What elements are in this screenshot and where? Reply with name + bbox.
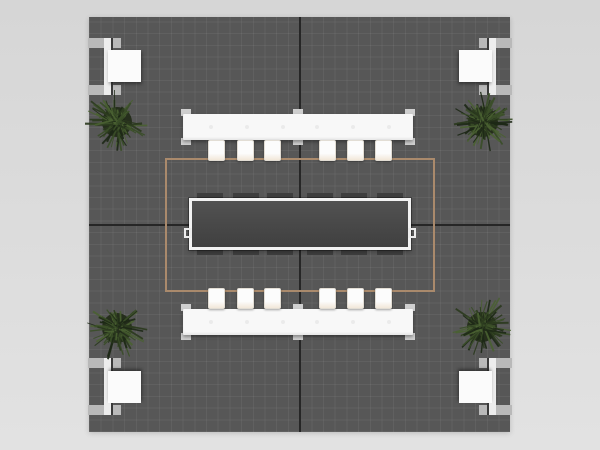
plant-top-left bbox=[85, 90, 149, 154]
counter-dot bbox=[281, 320, 285, 324]
corner-cabinet bbox=[108, 50, 141, 82]
counter-dot bbox=[315, 320, 319, 324]
counter-dot bbox=[387, 125, 391, 129]
stool bbox=[208, 288, 225, 309]
stool bbox=[208, 140, 225, 161]
corner-cabinet bbox=[459, 371, 492, 403]
table-grommet-right bbox=[408, 228, 416, 238]
stool bbox=[319, 288, 336, 309]
counter-dot bbox=[351, 125, 355, 129]
conference-table bbox=[189, 198, 411, 250]
corner-unit-top-left bbox=[88, 38, 131, 95]
corner-cabinet bbox=[108, 371, 141, 403]
table-grommet-left bbox=[184, 228, 192, 238]
counter-bottom bbox=[183, 309, 413, 335]
booth-render bbox=[0, 0, 600, 450]
counter-dot bbox=[245, 125, 249, 129]
counter-dot bbox=[387, 320, 391, 324]
counter-dot bbox=[351, 320, 355, 324]
corner-unit-bottom-right bbox=[469, 358, 512, 415]
counter-dot bbox=[281, 125, 285, 129]
counter-dot bbox=[315, 125, 319, 129]
stool bbox=[347, 288, 364, 309]
stool bbox=[375, 288, 392, 309]
counter-dot bbox=[209, 320, 213, 324]
corner-cabinet bbox=[459, 50, 492, 82]
counter-dot bbox=[209, 125, 213, 129]
stool bbox=[264, 288, 281, 309]
stool bbox=[319, 140, 336, 161]
corner-unit-top-right bbox=[469, 38, 512, 95]
plant-bottom-left bbox=[85, 296, 149, 360]
stool bbox=[347, 140, 364, 161]
plant-bottom-right bbox=[450, 295, 514, 359]
booth-floor bbox=[89, 17, 510, 432]
stool bbox=[237, 288, 254, 309]
stool bbox=[237, 140, 254, 161]
stool bbox=[264, 140, 281, 161]
counter-dot bbox=[245, 320, 249, 324]
stool bbox=[375, 140, 392, 161]
counter-top bbox=[183, 114, 413, 140]
plant-top-right bbox=[451, 90, 515, 154]
corner-unit-bottom-left bbox=[88, 358, 131, 415]
